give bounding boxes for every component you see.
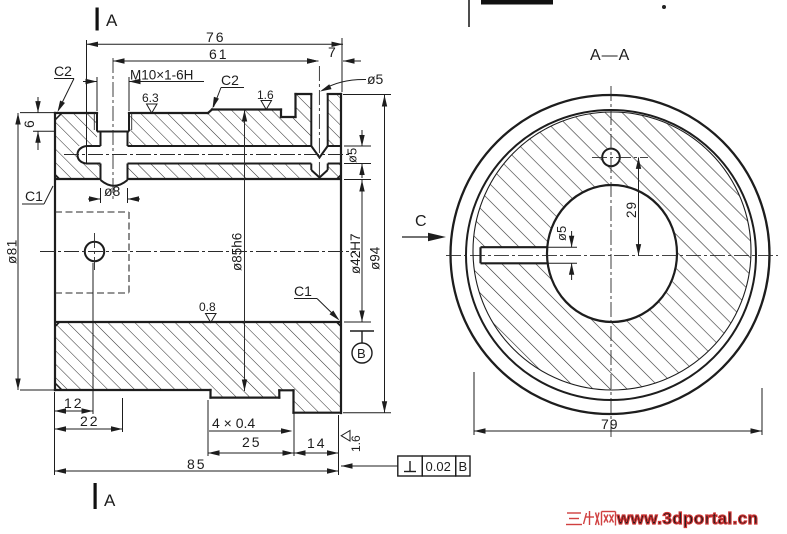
svg-text:B: B bbox=[459, 459, 468, 474]
svg-text:ø42H7: ø42H7 bbox=[348, 233, 363, 274]
svg-text:6.3: 6.3 bbox=[142, 91, 159, 105]
svg-text:ø94: ø94 bbox=[368, 246, 383, 270]
svg-text:C1: C1 bbox=[294, 283, 312, 299]
svg-text:12: 12 bbox=[64, 395, 84, 411]
svg-text:61: 61 bbox=[209, 46, 229, 62]
svg-text:29: 29 bbox=[624, 201, 639, 218]
svg-text:14: 14 bbox=[307, 435, 327, 451]
svg-text:C: C bbox=[415, 213, 427, 230]
svg-text:79: 79 bbox=[601, 416, 619, 432]
svg-text:0.02: 0.02 bbox=[426, 459, 451, 474]
svg-text:A: A bbox=[106, 11, 118, 30]
svg-text:6: 6 bbox=[21, 120, 37, 128]
svg-text:B: B bbox=[357, 346, 366, 361]
svg-text:ø5: ø5 bbox=[367, 71, 384, 87]
svg-text:4 × 0.4: 4 × 0.4 bbox=[212, 415, 255, 431]
svg-text:C2: C2 bbox=[54, 63, 72, 79]
svg-text:7: 7 bbox=[328, 44, 336, 60]
svg-text:85: 85 bbox=[187, 456, 207, 472]
svg-text:ø5: ø5 bbox=[554, 226, 569, 241]
svg-text:A—A: A—A bbox=[590, 47, 630, 64]
svg-text:1.6: 1.6 bbox=[349, 435, 363, 452]
svg-text:22: 22 bbox=[80, 413, 100, 429]
svg-text:76: 76 bbox=[206, 29, 226, 45]
svg-text:ø85h6: ø85h6 bbox=[230, 233, 245, 271]
svg-text:C2: C2 bbox=[221, 72, 239, 88]
svg-text:1.6: 1.6 bbox=[257, 88, 274, 102]
svg-text:25: 25 bbox=[242, 434, 262, 450]
svg-text:M10×1-6H: M10×1-6H bbox=[130, 68, 193, 83]
svg-text:ø5: ø5 bbox=[345, 148, 360, 163]
svg-text:ø81: ø81 bbox=[5, 239, 20, 264]
svg-text:www.3dportal.cn: www.3dportal.cn bbox=[616, 509, 758, 528]
svg-text:ø8: ø8 bbox=[104, 183, 121, 199]
svg-text:C1: C1 bbox=[25, 188, 43, 204]
svg-text:0.8: 0.8 bbox=[199, 300, 216, 314]
svg-text:A: A bbox=[104, 491, 116, 510]
